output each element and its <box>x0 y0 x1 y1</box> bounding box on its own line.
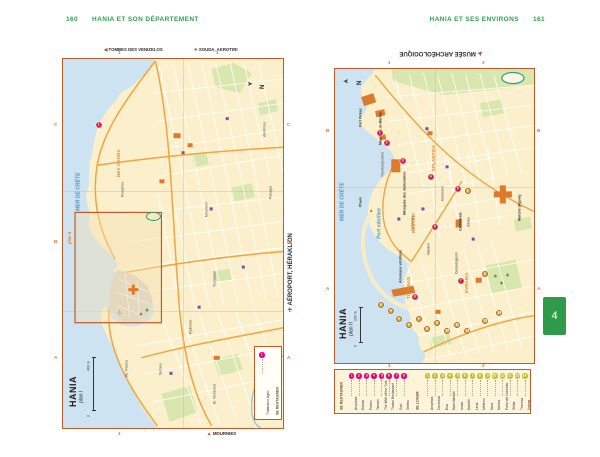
poi-label: Arsenaux vénitiens <box>399 250 403 283</box>
grid-row-label: C <box>54 123 57 128</box>
restaurant-marker: 4 <box>371 373 377 379</box>
legend-leader <box>404 380 405 396</box>
district-label: TOPANAS <box>407 277 411 299</box>
map-title: HANIA <box>69 376 78 407</box>
legend-restaurant-entries: 1Amphora2Kostas3Portes4Tamam5The Well of… <box>348 372 408 411</box>
hotel-marker: 9 <box>485 373 491 379</box>
grid-row-label: B <box>287 240 290 245</box>
hotel-marker: 14 <box>522 373 528 379</box>
legend-leader <box>442 380 443 396</box>
restaurant-marker: 8 <box>412 294 418 300</box>
legend-restaurant-entry: 5The Well of the Turk <box>378 372 386 411</box>
legend-leader <box>366 380 367 396</box>
street-label: Halidon <box>427 243 430 255</box>
hotel-marker: 7 <box>416 316 422 322</box>
legend-hotel-entry: 8Meltemi <box>477 372 485 411</box>
sea-label: Port vénitien <box>377 208 382 239</box>
legend-hotel-entry: 2Contessa <box>432 372 440 411</box>
sea-label: MER DE CRÈTE <box>76 172 81 211</box>
poi-label: Musée de la Marine <box>379 112 383 145</box>
hotel-marker: 5 <box>455 373 461 379</box>
hotel-marker: 3 <box>440 373 446 379</box>
hotel-marker: 1 <box>465 188 471 194</box>
legend-leader <box>359 380 360 396</box>
grid-row-label: B <box>326 129 329 134</box>
map-subtitle: plan II <box>349 322 354 336</box>
compass-north: N <box>260 85 266 89</box>
grid-row-label: B <box>537 129 540 134</box>
legend-leader <box>389 380 390 396</box>
hotel-marker: 9 <box>434 320 440 326</box>
grid-row-label: C <box>287 123 290 128</box>
restaurant-marker: 6 <box>432 224 438 230</box>
district-label: NEA CHORA <box>117 149 121 177</box>
street-label: Panagia <box>269 186 272 199</box>
grid-row-label: A <box>537 287 540 292</box>
street-label: Kydonias <box>189 320 192 334</box>
legend-leader <box>374 380 375 396</box>
legend-hotel-entry: 13Theresa <box>514 372 522 411</box>
restaurant-marker: 8 <box>401 373 407 379</box>
edge-label-musee: ➤ MUSÉE ARCHÉOLOGIQUE <box>396 50 486 57</box>
legend-entry: Thalassino Ageri <box>267 391 270 415</box>
section-tab: 4 <box>543 297 566 335</box>
hotel-marker: 14 <box>496 310 502 316</box>
legend-entry-label: Stelios <box>407 400 410 410</box>
legend-hotel-entry: 12Stella <box>507 372 515 411</box>
legend-leader <box>495 380 496 396</box>
legend-leader <box>502 380 503 396</box>
hotel-marker: 12 <box>464 328 470 334</box>
hotel-marker: 8 <box>424 326 430 332</box>
hotel-marker: 2 <box>482 271 488 277</box>
plane-icon: ✈ <box>288 307 294 312</box>
hotel-marker: 11 <box>454 322 460 328</box>
legend-leader <box>517 380 518 396</box>
restaurant-marker: 2 <box>356 373 362 379</box>
inset-label: plan II <box>68 232 72 244</box>
edge-label-mournies: ➤ MOURNIES <box>208 432 236 436</box>
restaurant-marker: 5 <box>379 373 385 379</box>
legend-leader <box>396 380 397 396</box>
scale-max: 200 m <box>354 311 357 321</box>
legend-restaurant-entry: 4Tamam <box>371 372 379 411</box>
left-page-title: HANIA ET SON DÉPARTEMENT <box>92 16 199 23</box>
legend-leader <box>351 380 352 396</box>
arrow-left-icon: ◀ <box>104 48 107 52</box>
legend-hotel-entry: 7Lena <box>469 372 477 411</box>
grid-row-label: A <box>326 287 329 292</box>
legend-restaurant-entry: 3Portes <box>363 372 371 411</box>
legend-restaurant-entry: 1Amphora <box>348 372 356 411</box>
grid-row-label: A <box>54 356 57 361</box>
right-page-title: HANIA ET SES ENVIRONS <box>430 16 519 23</box>
street-label: Theotokopoulou <box>381 152 384 177</box>
grid-col-label: 2 <box>482 61 485 66</box>
legend-leader <box>450 380 451 396</box>
restaurant-marker: 7 <box>394 373 400 379</box>
restaurant-marker: 1 <box>377 130 383 136</box>
hotel-marker: 6 <box>406 322 412 328</box>
legend-entry-label: Vranas <box>528 400 531 410</box>
restaurant-marker: 3 <box>364 373 370 379</box>
legend-hotel-entry: 1Amphora <box>424 372 432 411</box>
street-label: Sifaka <box>467 217 470 227</box>
plan-2-legend: SE RESTAURER 1Amphora2Kostas3Portes4Tama… <box>334 369 531 414</box>
compass-arrow-icon: ➤ <box>343 77 349 84</box>
street-label: Kissamou <box>121 182 124 197</box>
legend-hotel-entry: 10Nostos <box>492 372 500 411</box>
grid-col-label: 1 <box>388 61 391 66</box>
legend-leader <box>472 380 473 396</box>
hotel-marker: 8 <box>477 373 483 379</box>
guidebook-spread: 160HANIA ET SON DÉPARTEMENT HANIA ET SES… <box>0 0 600 457</box>
poi-label: Fort Firkas <box>359 108 363 127</box>
hotel-marker: 4 <box>388 308 394 314</box>
street-label: Tzanakaki <box>213 271 216 287</box>
hotel-marker: 4 <box>447 373 453 379</box>
scale-bar <box>360 307 361 343</box>
grid-row-label: B <box>54 240 57 245</box>
poi-label: Cathédrale <box>459 212 463 231</box>
right-page-header: HANIA ET SES ENVIRONS161 <box>430 16 545 23</box>
hotel-marker: 10 <box>444 328 450 334</box>
legend-hotel-entries: 1Amphora2Contessa3Eva4Hotel Afroditi5Ion… <box>424 372 529 411</box>
restaurant-marker: 4 <box>428 174 434 180</box>
scale-zero: 0 <box>87 415 90 417</box>
legend-hotel-entry: 14Vranas <box>522 372 530 411</box>
legend-hotel-entry: 5Ionas <box>454 372 462 411</box>
restaurant-marker: 7 <box>458 278 464 284</box>
legend-leader <box>465 380 466 396</box>
scale-bar <box>93 357 94 411</box>
poi-label: Mosquée des Janissaires <box>403 172 407 215</box>
map-plan-1: ♣♣ ⚓ HANIA plan I 400 m 0 plan II ➤ N ME… <box>62 58 284 429</box>
hotel-marker: 13 <box>515 373 521 379</box>
legend-leader <box>487 380 488 396</box>
map-title: HANIA <box>339 308 348 339</box>
street-label: Selinou <box>159 363 162 375</box>
poi-label: Phare <box>359 197 363 207</box>
street-label: Kanevaro <box>441 186 444 201</box>
legend-restaurant-entry: 2Kostas <box>356 372 364 411</box>
hotel-marker: 13 <box>482 318 488 324</box>
restaurant-marker: 2 <box>384 140 390 146</box>
scale-max: 400 m <box>87 361 90 371</box>
compass-arrow-icon: ➤ <box>247 81 253 88</box>
legend-hotel-entry: 3Eva <box>439 372 447 411</box>
legend-leader <box>427 380 428 396</box>
street-label: Daskalogianni <box>455 252 458 274</box>
legend-restaurant-entry: 8Stelios <box>401 372 409 411</box>
street-label: Mournion <box>205 202 208 217</box>
hotel-marker: 6 <box>462 373 468 379</box>
legend-leader <box>457 380 458 396</box>
hotel-marker: 1 <box>425 373 431 379</box>
legend-hotel-entry: 4Hotel Afroditi <box>447 372 455 411</box>
restaurant-marker: 1 <box>259 352 265 358</box>
legend-leader <box>525 380 526 396</box>
sea-label: MER DE CRÈTE <box>340 182 345 221</box>
legend-restaurants-header: SE RESTAURER <box>338 372 348 411</box>
street-label: Ap. Pavlou <box>125 360 128 377</box>
grid-col-label: 1 <box>118 432 121 437</box>
grid-col-label: 2 <box>216 51 219 56</box>
map-plan-2: ♣♣♣ HANIA plan II 200 m 0 ➤ N MER DE CRÈ… <box>334 68 535 364</box>
left-page-header: 160HANIA ET SON DÉPARTEMENT <box>66 16 199 23</box>
hotel-marker: 11 <box>500 373 506 379</box>
district-label: EVRAIKA <box>465 272 469 293</box>
hotel-marker: 7 <box>470 373 476 379</box>
plan-1-overlay: HANIA plan I 400 m 0 plan II ➤ N MER DE … <box>63 59 283 428</box>
poi-label: Marché (Agora) <box>518 195 522 221</box>
hotel-marker: 12 <box>507 373 513 379</box>
legend-restaurant-entry: 6Tholos Restaurant <box>386 372 394 411</box>
legend-hotel-entry: 9Nora <box>484 372 492 411</box>
legend-leader <box>480 380 481 396</box>
map-subtitle: plan I <box>79 391 84 403</box>
legend-restaurant-entry: 7Suki <box>393 372 401 411</box>
restaurant-marker: 5 <box>455 186 461 192</box>
restaurant-marker: 3 <box>400 158 406 164</box>
street-label: El. Venizelou <box>213 384 216 404</box>
legend-hotels-header: SE LOGER <box>414 372 424 411</box>
compass-north: N <box>357 81 363 85</box>
restaurant-marker: 1 <box>96 122 102 128</box>
restaurant-marker: 1 <box>349 373 355 379</box>
arrow-up-icon: ➤ <box>208 432 212 436</box>
hotel-marker: 5 <box>396 316 402 322</box>
grid-row-label: A <box>287 356 290 361</box>
street-label: Zambeliou <box>411 215 414 231</box>
arrow-icon: ➤ <box>476 49 485 58</box>
legend-hotel-entry: 6Kastelli <box>462 372 470 411</box>
right-page-number: 161 <box>533 16 545 23</box>
legend-leader <box>510 380 511 396</box>
edge-label-aeroport: ✈ AÉROPORT, HÉRAKLION <box>288 233 294 312</box>
grid-col-label: 2 <box>216 432 219 437</box>
scale-zero: 0 <box>354 345 357 347</box>
hotel-marker: 2 <box>432 373 438 379</box>
district-label: SPLANTZIA <box>432 145 436 171</box>
grid-col-label: 1 <box>118 51 121 56</box>
restaurant-marker: 6 <box>386 373 392 379</box>
legend-header: SE RESTAURER <box>276 387 280 415</box>
legend-leader <box>262 359 263 373</box>
left-page-number: 160 <box>66 16 78 23</box>
edge-label-tombes: ◀ TOMBES DES VENIZELOS <box>104 48 163 52</box>
hotel-marker: 3 <box>378 302 384 308</box>
plane-icon: ✈ <box>194 48 198 52</box>
street-label: Akrotiriou <box>263 122 266 137</box>
plan-2-overlay: HANIA plan II 200 m 0 ➤ N MER DE CRÈTEPo… <box>335 69 534 363</box>
plan-1-legend: 1 Thalassino Ageri SE RESTAURER <box>254 346 282 420</box>
hotel-marker: 10 <box>492 373 498 379</box>
legend-hotel-entry: 11Porto del Colombo <box>499 372 507 411</box>
legend-leader <box>435 380 436 396</box>
legend-leader <box>381 380 382 396</box>
